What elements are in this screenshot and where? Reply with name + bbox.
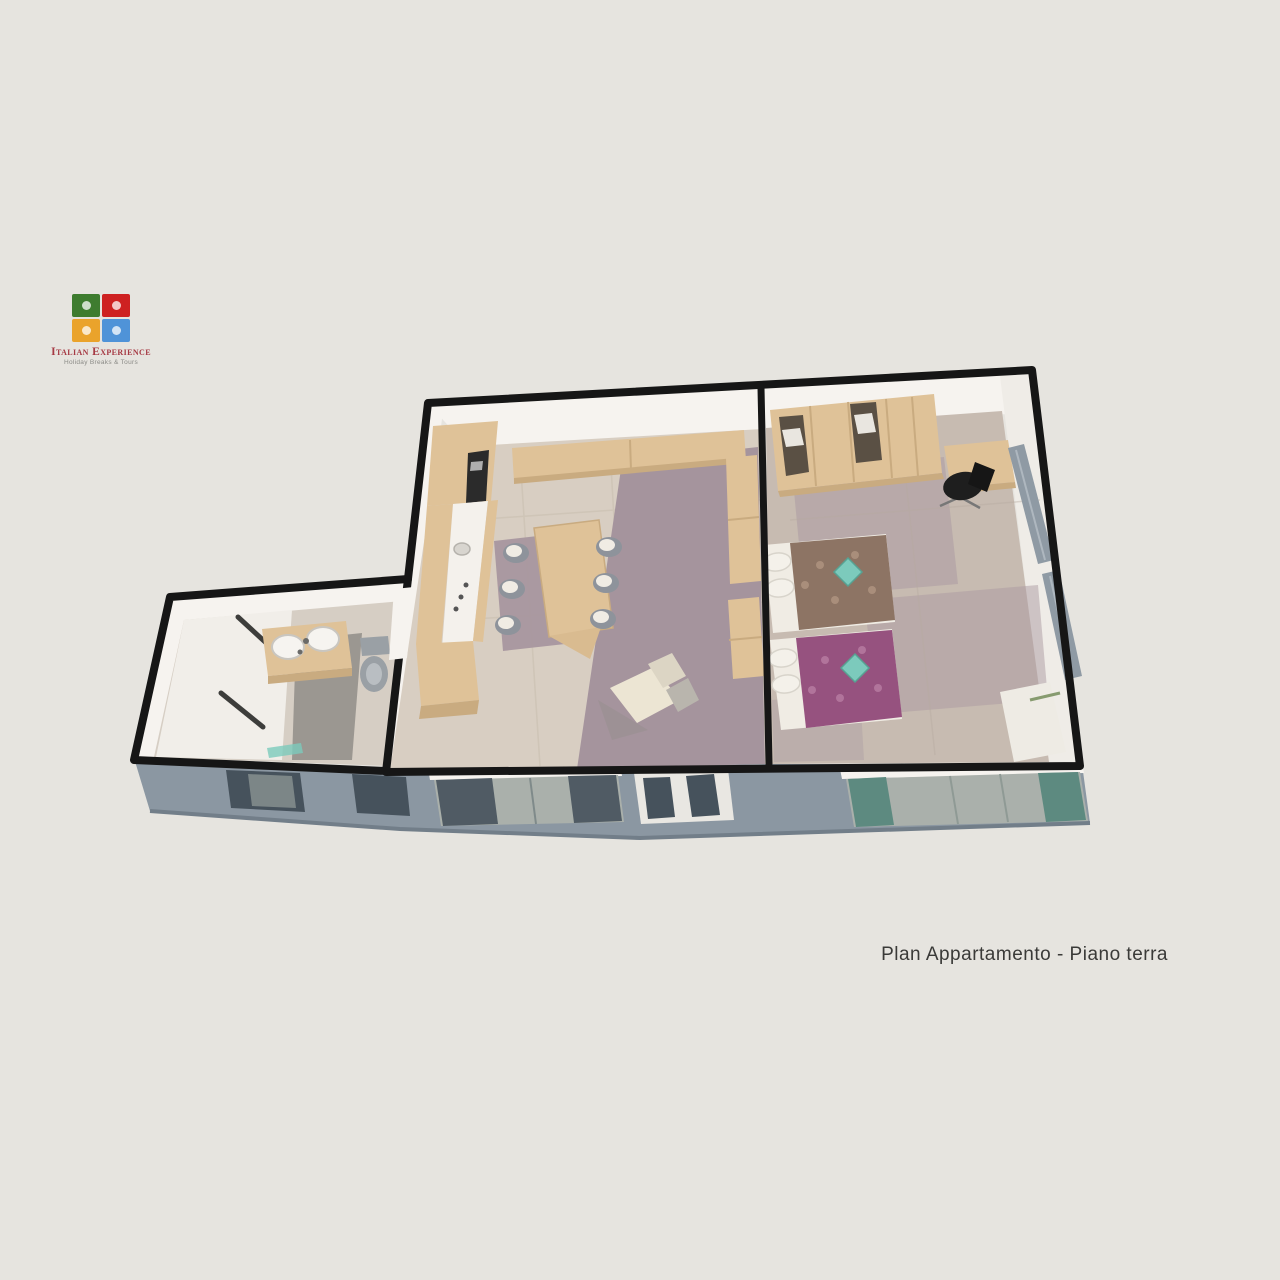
living-window-pane-left: [436, 778, 498, 826]
sink-basin-left: [272, 635, 304, 659]
cover-pattern: [874, 684, 882, 692]
cover-pattern: [836, 694, 844, 702]
cover-pattern: [858, 646, 866, 654]
entrance-door-pane-left: [643, 777, 675, 819]
cover-pattern: [816, 561, 824, 569]
floor-plan-render: [0, 0, 1280, 1280]
bed-purple: [768, 629, 902, 730]
kitchen-base-unit: [416, 641, 479, 706]
chair-seat: [506, 545, 522, 557]
tv-niche-shelf: [470, 461, 483, 471]
living-room: [390, 421, 769, 770]
cover-pattern: [831, 596, 839, 604]
bed-cover-purple: [796, 630, 902, 728]
bathroom: [154, 601, 402, 766]
chair-seat: [596, 575, 612, 587]
kitchen-sink: [454, 543, 470, 555]
hob-burner: [464, 583, 469, 588]
toilet-tank: [360, 636, 390, 656]
chair-seat: [502, 581, 518, 593]
chair-seat: [599, 539, 615, 551]
cover-pattern: [808, 686, 816, 694]
cover-pattern: [801, 581, 809, 589]
living-window-pane-right: [568, 775, 622, 823]
bedroom-curtain-right: [1038, 772, 1086, 822]
page: Italian Experience Holiday Breaks & Tour…: [0, 0, 1280, 1280]
hob-burner-2: [459, 595, 464, 600]
chair-seat: [498, 617, 514, 629]
sink-basin-right: [307, 627, 339, 651]
cover-pattern: [868, 586, 876, 594]
toilet-seat: [366, 663, 382, 685]
faucet: [303, 638, 309, 644]
entrance-door-pane-right: [686, 774, 720, 817]
caption: Plan Appartamento - Piano terra: [881, 944, 1168, 966]
bed-brown: [762, 534, 895, 633]
cover-pattern: [851, 551, 859, 559]
hob-burner-3: [454, 607, 459, 612]
cover-pattern: [821, 656, 829, 664]
bathroom-window-pane-2: [352, 774, 410, 816]
bathroom-window-curtain: [248, 774, 296, 808]
chair-seat: [593, 611, 609, 623]
tv-niche: [466, 450, 489, 503]
faucet-2: [298, 650, 303, 655]
wall-shelf-divider: [630, 440, 631, 470]
bedroom-curtain-left: [848, 777, 894, 827]
